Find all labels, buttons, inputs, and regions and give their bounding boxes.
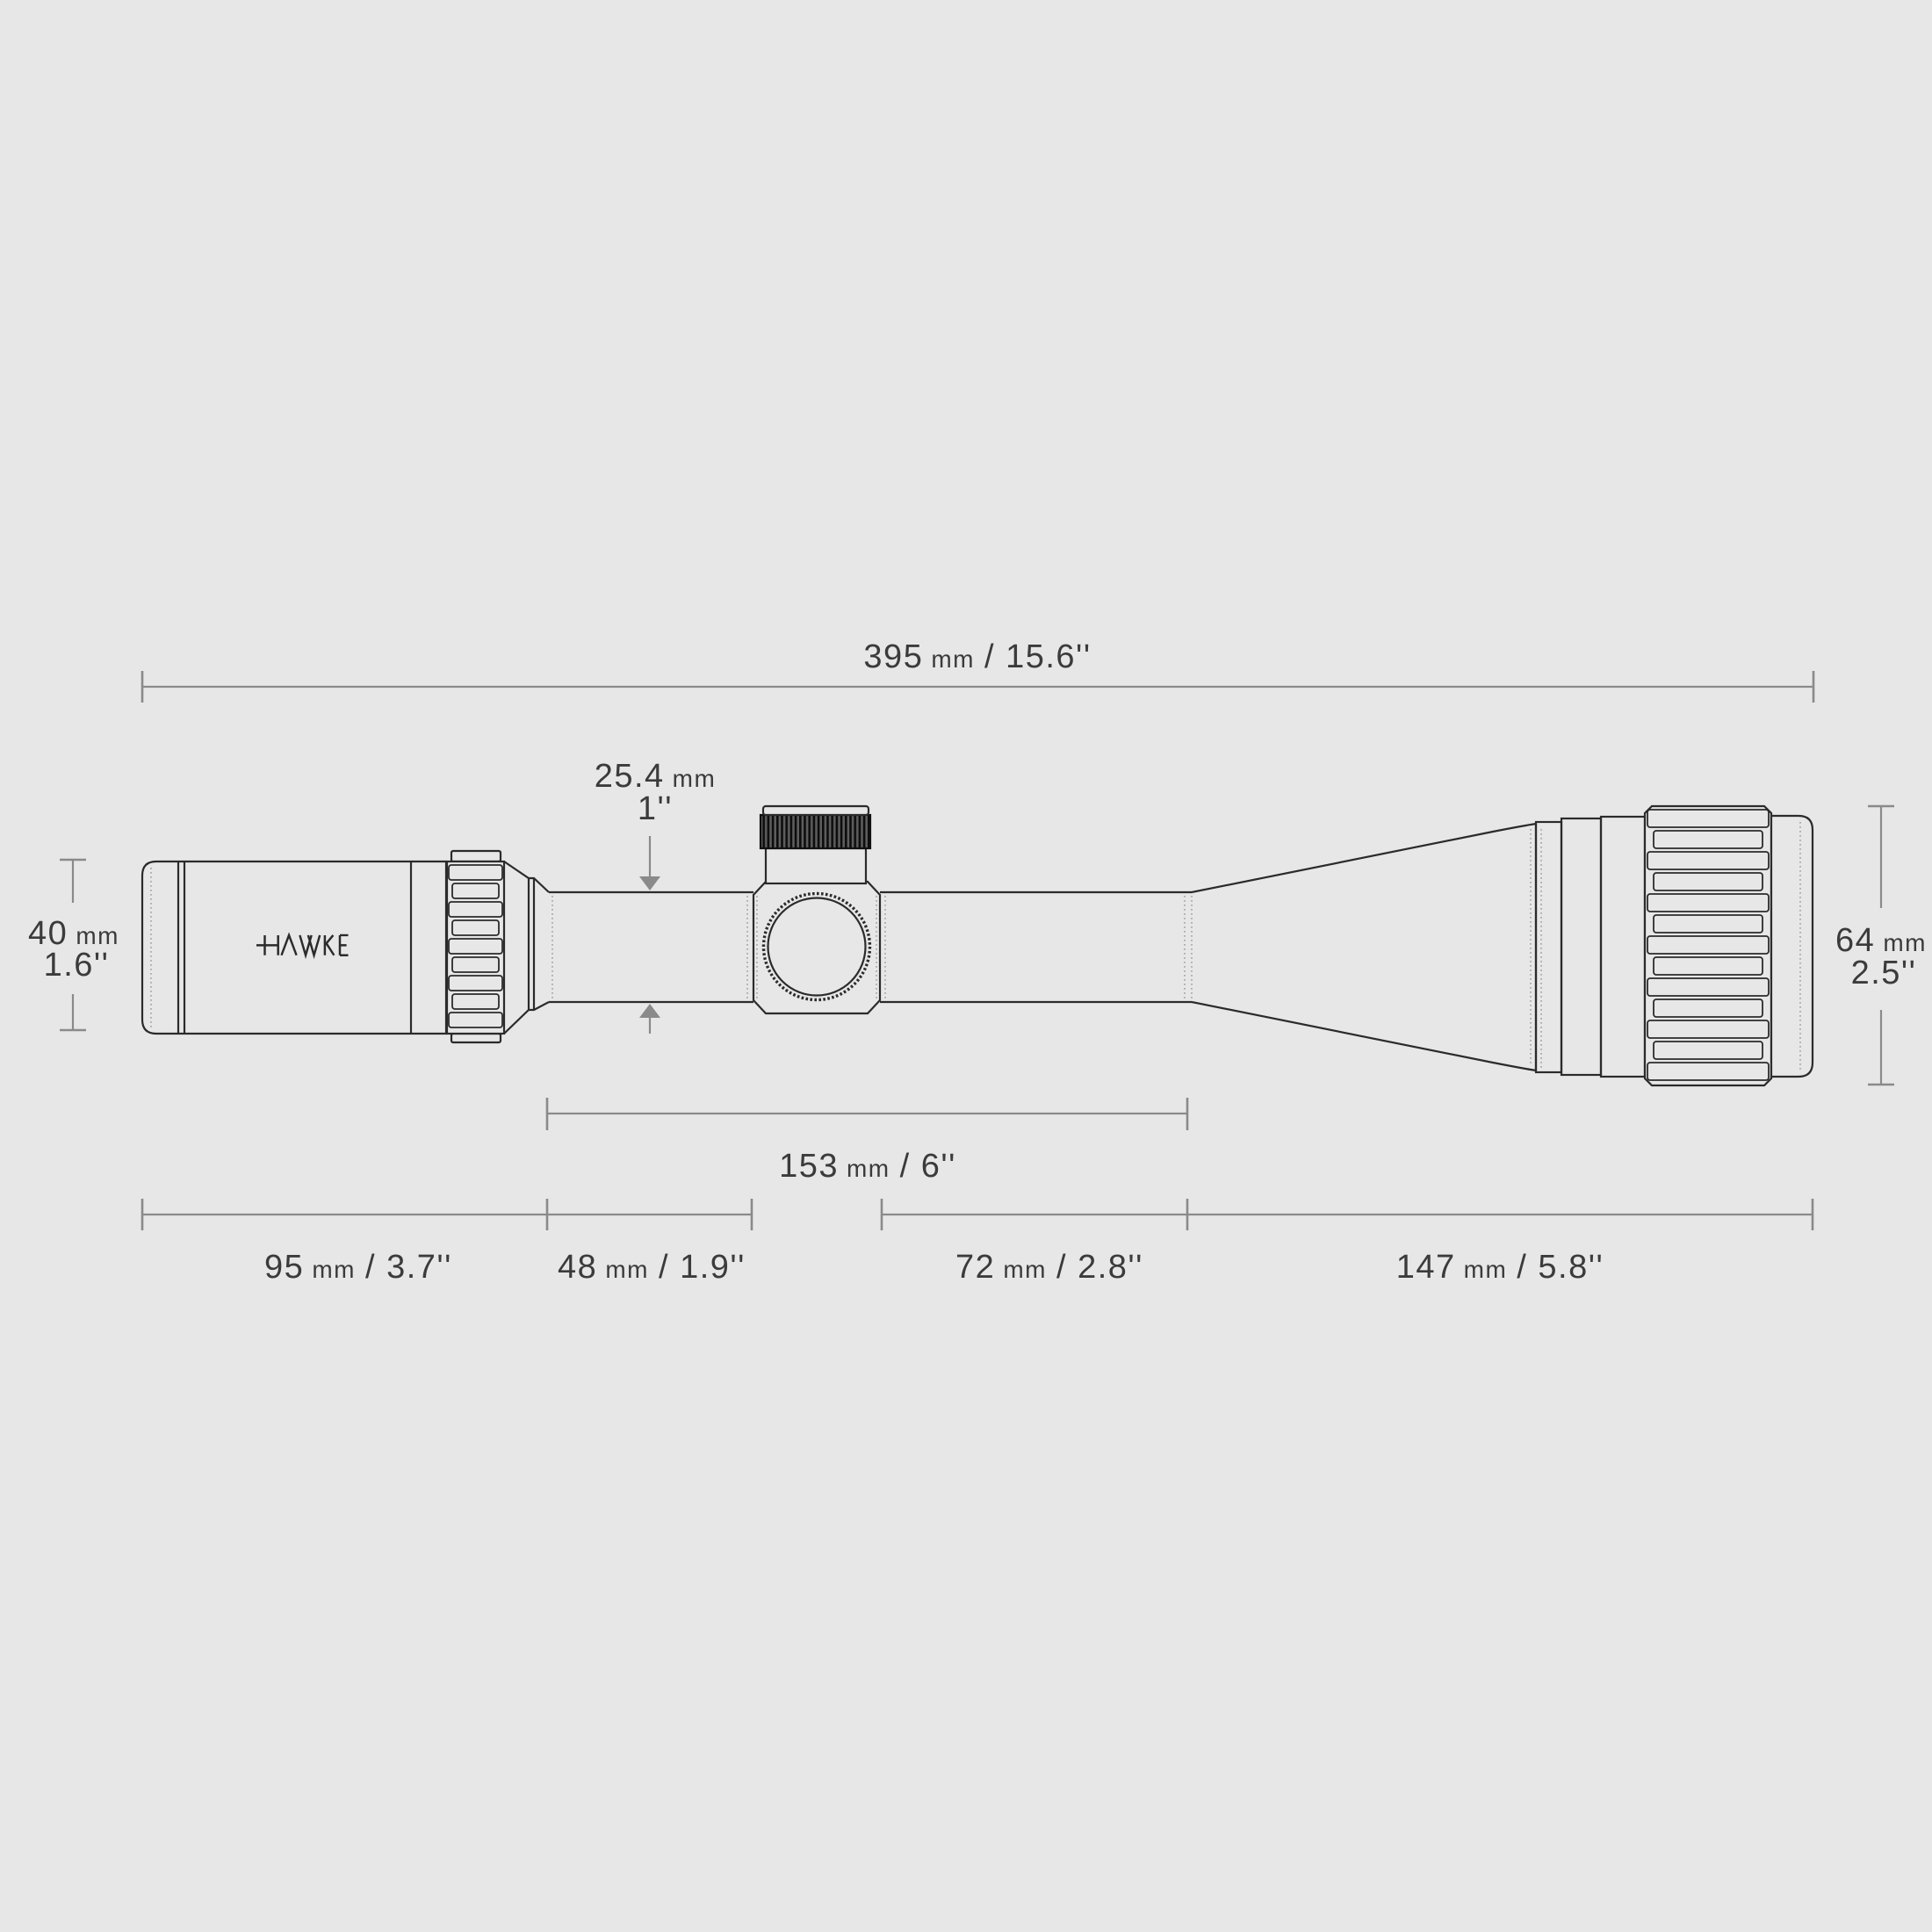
label-tube-length: 72mm/ 2.8'' [955,1249,1143,1286]
dim-bottom-left [142,1199,752,1230]
parallax-dial [764,894,870,1000]
main-tube-left [549,892,753,1002]
dim-tube-diameter-arrows [639,836,660,1034]
label-tube-diameter-in: 1'' [638,790,673,827]
label-objective-diameter-in: 2.5'' [1851,955,1917,991]
bell-band-2 [1561,818,1601,1075]
bell-band-1 [1536,822,1561,1072]
objective-end-cap [1771,816,1813,1077]
diagram-svg: HAWKE [0,0,1932,1932]
dim-mid-length [547,1098,1187,1130]
label-overall-length: 395mm/ 15.6'' [863,638,1091,675]
turret-stem [766,848,866,883]
label-objective-length: 147mm/ 5.8'' [1396,1249,1604,1286]
dim-overall-length [142,671,1813,703]
eyepiece-taper [504,861,549,1034]
label-mid-length: 153mm/ 6'' [779,1148,956,1185]
scope-dimension-diagram: HAWKE [0,0,1932,1932]
turret-saddle [753,882,880,1013]
turret-knurl-band [761,815,870,848]
label-tube-diameter-mm: 25.4mm [595,758,717,795]
turret-cap-lip [763,806,869,815]
scope-drawing: HAWKE [142,806,1813,1085]
turret-cap [761,806,870,883]
objective-bell [1192,817,1645,1077]
label-objective-diameter-mm: 64mm [1835,922,1927,959]
main-tube-right [880,892,1192,1002]
label-eyepiece-diameter-in: 1.6'' [44,947,110,984]
power-ring [447,851,504,1042]
dim-bottom-right [882,1199,1813,1230]
label-eyepiece-length: 95mm/ 3.7'' [264,1249,452,1286]
focus-ring [1645,806,1771,1085]
bell-band-3 [1601,817,1645,1077]
eyepiece: HAWKE [142,861,446,1034]
label-saddle-length: 48mm/ 1.9'' [558,1249,746,1286]
